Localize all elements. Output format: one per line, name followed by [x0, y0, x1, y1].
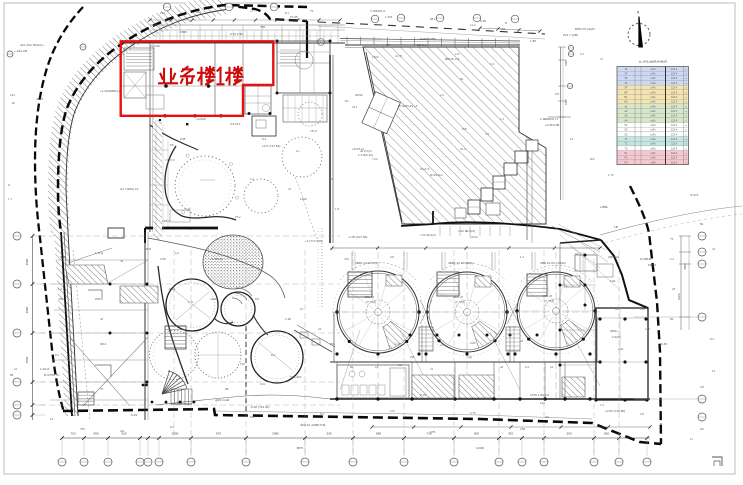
svg-text:TjC: TjC	[240, 362, 246, 366]
svg-text:14: 14	[712, 369, 716, 373]
svg-text:7.b2: 7.b2	[372, 157, 378, 161]
svg-text:2.2: 2.2	[398, 363, 402, 367]
svg-text:0.8: 0.8	[555, 92, 559, 96]
svg-text:Pk1.7 (AB): Pk1.7 (AB)	[563, 33, 578, 37]
svg-text:675: 675	[430, 430, 435, 434]
svg-text:123.4: 123.4	[671, 152, 678, 155]
svg-text:CCA-T: CCA-T	[420, 167, 430, 171]
svg-text:m: m	[685, 92, 687, 94]
svg-text:m: m	[685, 130, 687, 132]
svg-text:m: m	[685, 74, 687, 76]
svg-text:4500: 4500	[25, 258, 29, 265]
svg-text:T9L-2F1: T9L-2F1	[290, 375, 302, 379]
svg-text:123.4: 123.4	[671, 157, 678, 160]
svg-text:1c02(F): 1c02(F)	[612, 335, 621, 339]
svg-text:1.8c: 1.8c	[618, 347, 624, 351]
svg-text:c.c: c.c	[250, 9, 254, 13]
svg-text:750: 750	[260, 25, 265, 29]
svg-text:0.75: 0.75	[420, 393, 426, 397]
svg-text:5F: 5F	[625, 87, 628, 90]
svg-text:1F: 1F	[625, 68, 628, 71]
svg-text:FjF: FjF	[410, 355, 415, 359]
svg-text:6000: 6000	[677, 293, 681, 300]
svg-text:2280: 2280	[564, 60, 568, 66]
svg-text:1R.02: 1R.02	[470, 235, 478, 239]
svg-text:2.70 2.90: 2.70 2.90	[230, 32, 243, 36]
svg-text:1.80: 1.80	[530, 39, 536, 43]
svg-text:xxFx: xxFx	[650, 152, 656, 155]
svg-text:S8.4: S8.4	[100, 342, 107, 346]
svg-text:1.05: 1.05	[395, 342, 401, 346]
svg-text:88.2: 88.2	[430, 17, 436, 21]
svg-text:xxFx: xxFx	[650, 110, 656, 113]
svg-text:214: 214	[160, 11, 165, 15]
svg-text:c.4: c.4	[600, 403, 604, 407]
svg-text:123.4: 123.4	[671, 124, 678, 127]
svg-text:xxFx: xxFx	[650, 129, 656, 132]
svg-text:490: 490	[93, 432, 98, 436]
svg-text:B8: B8	[225, 387, 229, 391]
svg-text:2F: 2F	[625, 73, 628, 76]
svg-text:1B: 1B	[614, 225, 618, 229]
svg-text:m: m	[685, 158, 687, 160]
svg-text:c.BBL: c.BBL	[600, 205, 609, 209]
svg-text:1.205: 1.205	[385, 15, 393, 19]
svg-text:m: m	[685, 144, 687, 146]
svg-text:1.3EB2F.8 c7: 1.3EB2F.8 c7	[540, 117, 559, 121]
svg-text:123.4: 123.4	[671, 101, 678, 104]
svg-text:250: 250	[640, 307, 645, 311]
svg-text:427: 427	[385, 43, 390, 47]
svg-text:JGL 204 7R2(X)+: JGL 204 7R2(X)+	[20, 43, 44, 47]
svg-text:0.8: 0.8	[390, 255, 394, 259]
svg-text:1.8: 1.8	[335, 207, 339, 211]
svg-text:27.35: 27.35	[290, 15, 298, 19]
svg-text:5.4: 5.4	[262, 137, 267, 141]
svg-text:44c: 44c	[120, 429, 125, 433]
svg-text:c2: c2	[520, 339, 524, 343]
svg-text:123.4: 123.4	[671, 77, 678, 80]
svg-text:xxFx: xxFx	[650, 105, 656, 108]
svg-text:x8F4x: x8F4x	[610, 329, 618, 333]
svg-text:75: 75	[310, 9, 314, 13]
svg-text:xxFx: xxFx	[650, 143, 656, 146]
svg-text:520: 520	[250, 415, 255, 419]
svg-text:x1.2: x1.2	[470, 23, 476, 27]
svg-text:G1.7(200) L2: G1.7(200) L2	[120, 187, 139, 191]
svg-text:c1: c1	[600, 57, 603, 61]
svg-text:xxFx: xxFx	[650, 124, 656, 127]
svg-text:x8: x8	[500, 365, 503, 369]
svg-text:123.4: 123.4	[671, 115, 678, 118]
svg-text:2990: 2990	[272, 432, 279, 436]
svg-text:1.2: 1.2	[58, 287, 62, 291]
svg-text:123.4: 123.4	[671, 105, 678, 108]
svg-text:xxFx: xxFx	[650, 119, 656, 122]
svg-text:W/ 7B(X): W/ 7B(X)	[544, 300, 554, 303]
svg-text:W/ 7B(X): W/ 7B(X)	[455, 301, 465, 304]
svg-text:B2: B2	[670, 317, 674, 321]
svg-text:Y=54321.0: Y=54321.0	[370, 9, 385, 13]
svg-text:mZd8: mZd8	[210, 297, 218, 301]
svg-text:xxFx: xxFx	[650, 138, 656, 141]
svg-text:P.8: P.8	[330, 342, 335, 346]
svg-text:D=3750 H=: D=3750 H=	[44, 373, 60, 377]
svg-text:4500: 4500	[25, 356, 29, 363]
svg-text:m: m	[685, 125, 687, 127]
svg-text:B: B	[505, 21, 507, 25]
svg-text:xxFx: xxFx	[650, 157, 656, 160]
svg-text:28.8: 28.8	[145, 247, 151, 251]
svg-text:122: 122	[645, 327, 650, 331]
svg-text:-0.60 (716.40): -0.60 (716.40)	[250, 405, 269, 409]
svg-text:4420: 4420	[564, 99, 568, 105]
svg-text:xxFx: xxFx	[650, 161, 656, 164]
svg-text:xL xFxLxBxRxFxBxR: xL xFxLxBxRxFxBxR	[639, 60, 668, 64]
svg-text:-0.02: -0.02	[168, 287, 175, 291]
svg-text:+0.3F0.2B: +0.3F0.2B	[545, 123, 559, 127]
svg-text:+1.3A09Z8L1c: +1.3A09Z8L1c	[100, 89, 121, 93]
svg-text:m: m	[685, 106, 687, 108]
svg-text:-1.05 (107.95): -1.05 (107.95)	[348, 235, 367, 239]
svg-text:1.7(1): 1.7(1)	[95, 251, 103, 255]
svg-text:1F: 1F	[300, 307, 304, 311]
svg-text:xxFx: xxFx	[650, 101, 656, 104]
svg-text:m: m	[685, 120, 687, 122]
svg-text:m: m	[685, 162, 687, 164]
svg-text:+0.000: +0.000	[196, 117, 206, 121]
svg-text:0.4: 0.4	[490, 62, 494, 66]
svg-text:123.4: 123.4	[671, 133, 678, 136]
svg-text:1.7: 1.7	[8, 197, 12, 201]
svg-text:RF: RF	[624, 91, 628, 94]
svg-text:-0.45: -0.45	[660, 342, 667, 346]
svg-text:48-0.5x 4c8B(718): 48-0.5x 4c8B(718)	[300, 423, 325, 427]
svg-text:m: m	[685, 97, 687, 99]
svg-text:m: m	[685, 111, 687, 113]
svg-text:D=21.0m: D=21.0m	[430, 173, 443, 177]
svg-text:xxFx: xxFx	[650, 77, 656, 80]
svg-text:4BR1.27 W/ 7B(X): 4BR1.27 W/ 7B(X)	[448, 261, 473, 265]
svg-text:123.4: 123.4	[671, 129, 678, 132]
svg-text:1.2: 1.2	[500, 117, 504, 121]
svg-text:0.8: 0.8	[700, 385, 704, 389]
svg-text:123.4: 123.4	[671, 143, 678, 146]
svg-text:75: 75	[670, 237, 674, 241]
svg-text:8.8: 8.8	[255, 297, 259, 301]
svg-text:m: m	[685, 134, 687, 136]
svg-text:c2: c2	[14, 367, 17, 371]
svg-text:R+2: R+2	[196, 10, 202, 14]
svg-text:ABF4A1: ABF4A1	[608, 255, 620, 259]
svg-text:xxFx: xxFx	[650, 91, 656, 94]
svg-text:x2: x2	[440, 343, 443, 347]
svg-text:2.c: 2.c	[296, 149, 300, 153]
svg-text:xxFx: xxFx	[650, 73, 656, 76]
svg-text:2.4: 2.4	[440, 93, 444, 97]
svg-text:+3 (717.640): +3 (717.640)	[305, 239, 323, 243]
svg-text:+8 RT+a: +8 RT+a	[352, 147, 364, 151]
svg-text:0.75: 0.75	[470, 411, 476, 415]
svg-text:1.20: 1.20	[285, 317, 291, 321]
svg-text:c2: c2	[712, 247, 715, 251]
svg-text:8b: 8b	[460, 77, 464, 81]
svg-text:0.8b: 0.8b	[470, 341, 476, 345]
svg-text:JS1: JS1	[344, 257, 349, 261]
svg-text:45.62: 45.62	[355, 93, 363, 97]
svg-text:BHD P6 (AQH: BHD P6 (AQH	[575, 27, 595, 31]
svg-text:cjR4 xUd0: cjR4 xUd0	[215, 398, 230, 402]
svg-text:123.4: 123.4	[671, 119, 678, 122]
svg-text:B1: B1	[700, 222, 704, 226]
svg-text:1075.1 82.3 8: 1075.1 82.3 8	[530, 393, 549, 397]
svg-text:Zh8: Zh8	[95, 297, 101, 301]
svg-text:m: m	[685, 78, 687, 80]
svg-text:900: 900	[474, 432, 479, 436]
svg-text:88: 88	[10, 373, 14, 377]
svg-text:8.2: 8.2	[170, 425, 174, 429]
svg-text:+1 (B9.8): +1 (B9.8)	[210, 257, 223, 261]
svg-text:22: 22	[318, 327, 322, 331]
svg-text:1.FA-8: 1.FA-8	[40, 367, 49, 371]
svg-text:8 cZB4Z: 8 cZB4Z	[640, 257, 652, 261]
svg-text:123.4: 123.4	[671, 68, 678, 71]
svg-text:c 02 9E.9(X): c 02 9E.9(X)	[458, 229, 475, 233]
svg-text:Fd8: Fd8	[180, 137, 186, 141]
svg-text:122: 122	[540, 401, 545, 405]
svg-text:1F8.1: 1F8.1	[162, 219, 170, 223]
svg-text:8.8: 8.8	[462, 127, 467, 131]
svg-text:Rf GRN.FL +T: Rf GRN.FL +T	[398, 104, 418, 108]
svg-text:750: 750	[70, 432, 75, 436]
svg-text:8c2: 8c2	[590, 157, 595, 161]
svg-text:-0.45: -0.45	[130, 413, 137, 417]
svg-text:44: 44	[120, 259, 124, 263]
svg-text:c.02 9E.9(X): c.02 9E.9(X)	[420, 233, 436, 237]
svg-text:W/ 7B(X): W/ 7B(X)	[366, 301, 376, 304]
svg-text:B1: B1	[350, 365, 354, 369]
svg-text:0.4: 0.4	[525, 365, 529, 369]
svg-text:560: 560	[604, 432, 609, 436]
svg-text:xxFx: xxFx	[650, 115, 656, 118]
svg-text:c4: c4	[375, 365, 378, 369]
svg-text:xxFx: xxFx	[650, 82, 656, 85]
svg-text:K+0.00: K+0.00	[150, 44, 160, 48]
svg-text:12400: 12400	[476, 446, 484, 450]
svg-text:m: m	[685, 69, 687, 71]
svg-text:0.2c: 0.2c	[260, 382, 266, 386]
svg-text:B4P5.12B6: B4P5.12B6	[420, 37, 436, 41]
svg-text:123.4: 123.4	[671, 110, 678, 113]
svg-text:150: 150	[520, 427, 525, 431]
svg-text:R1: R1	[345, 99, 349, 103]
svg-text:4.2: 4.2	[615, 307, 619, 311]
svg-text:123.4: 123.4	[671, 82, 678, 85]
svg-text:c.8: c.8	[485, 132, 489, 136]
svg-text:4BR1.22 W/ 6(X): 4BR1.22 W/ 6(X)	[355, 261, 378, 265]
svg-text:m: m	[685, 102, 687, 104]
svg-text:x0.78: x0.78	[395, 54, 402, 58]
svg-text:1c4: 1c4	[390, 409, 395, 413]
svg-text:c8.1: c8.1	[352, 105, 358, 109]
svg-text:123.4: 123.4	[671, 91, 678, 94]
svg-text:1200: 1200	[372, 55, 379, 59]
svg-text:2.08: 2.08	[160, 257, 166, 261]
svg-text:123.4: 123.4	[671, 73, 678, 76]
svg-text:675: 675	[216, 432, 221, 436]
svg-text:JT8: JT8	[58, 297, 63, 301]
svg-text:290: 290	[566, 432, 571, 436]
svg-text:430: 430	[500, 27, 505, 31]
svg-text:c8: c8	[672, 287, 675, 291]
svg-text:988: 988	[376, 432, 381, 436]
svg-text:xxFx: xxFx	[650, 133, 656, 136]
svg-text:c2: c2	[330, 247, 333, 251]
svg-text:xxFx: xxFx	[650, 68, 656, 71]
svg-text:m: m	[685, 116, 687, 118]
svg-text:4500: 4500	[683, 263, 687, 270]
svg-text:2.2: 2.2	[580, 52, 584, 56]
svg-text:+0.00 (716.80): +0.00 (716.80)	[605, 409, 625, 413]
svg-text:m: m	[685, 153, 687, 155]
svg-text:c4: c4	[288, 187, 291, 191]
svg-text:75: 75	[100, 387, 104, 391]
svg-text:1J00: 1J00	[300, 197, 307, 201]
svg-text:dLZX: dLZX	[36, 97, 43, 101]
svg-text:Jyj: Jyj	[468, 355, 472, 359]
svg-text:214: 214	[10, 93, 15, 97]
svg-text:1-1.8(2.1h): 1-1.8(2.1h)	[358, 153, 373, 157]
svg-text:2R: 2R	[545, 415, 549, 419]
svg-text:X=2.5: X=2.5	[690, 193, 698, 197]
svg-text:8870: 8870	[297, 446, 304, 450]
svg-text:123.4: 123.4	[671, 161, 678, 164]
svg-text:m: m	[685, 139, 687, 141]
svg-text:m: m	[685, 88, 687, 90]
svg-text:B4: B4	[330, 177, 334, 181]
svg-text:123.4: 123.4	[671, 138, 678, 141]
svg-text:m: m	[685, 83, 687, 85]
svg-text:75.2: 75.2	[235, 215, 241, 219]
svg-text:0.25: 0.25	[480, 19, 486, 23]
svg-text:+ A24.2M: + A24.2M	[14, 49, 28, 53]
svg-text:bZ: bZ	[700, 427, 704, 431]
svg-text:J1: J1	[430, 367, 433, 371]
svg-text:YP-2: YP-2	[310, 129, 317, 133]
svg-text:xxFx: xxFx	[650, 96, 656, 99]
svg-text:14: 14	[50, 417, 54, 421]
svg-text:750: 750	[80, 427, 85, 431]
svg-text:B: B	[660, 422, 662, 426]
svg-text:1.2: 1.2	[520, 255, 524, 259]
svg-text:12.0 (717.64): 12.0 (717.64)	[262, 144, 280, 148]
svg-text:3F: 3F	[625, 77, 628, 80]
svg-text:0.22: 0.22	[185, 207, 191, 211]
svg-text:22.4: 22.4	[460, 147, 466, 151]
svg-text:1.75: 1.75	[608, 173, 614, 177]
svg-text:508: 508	[326, 432, 331, 436]
svg-text:8.2: 8.2	[320, 412, 324, 416]
svg-text:Ld: Ld	[175, 251, 179, 255]
svg-text:4F: 4F	[625, 82, 628, 85]
svg-text:3.6 FFL: 3.6 FFL	[230, 122, 241, 126]
svg-text:8.1: 8.1	[55, 353, 59, 357]
svg-text:4BR.21 9V / 2BAN: 4BR.21 9V / 2BAN	[540, 261, 566, 265]
svg-text:N: N	[637, 11, 640, 15]
svg-text:BROIL 2.4: BROIL 2.4	[445, 57, 460, 61]
svg-text:8.1: 8.1	[285, 11, 289, 15]
svg-text:123.4: 123.4	[671, 87, 678, 90]
svg-text:xxFx: xxFx	[650, 87, 656, 90]
svg-text:8.4: 8.4	[271, 353, 275, 357]
svg-text:14: 14	[570, 137, 574, 141]
svg-text:3.50: 3.50	[60, 255, 66, 259]
svg-text:2.4: 2.4	[670, 257, 674, 261]
svg-text:p2: p2	[550, 365, 554, 369]
svg-text:2690: 2690	[172, 432, 179, 436]
svg-text:2.8: 2.8	[640, 412, 644, 416]
svg-text:1500: 1500	[180, 30, 187, 34]
svg-text:4800: 4800	[25, 306, 29, 313]
svg-text:1.2: 1.2	[250, 177, 254, 181]
svg-text:425: 425	[508, 432, 513, 436]
svg-text:8.2: 8.2	[710, 337, 714, 341]
svg-text:123.4: 123.4	[671, 96, 678, 99]
svg-text:P8: P8	[170, 143, 174, 147]
svg-text:123.4: 123.4	[671, 147, 678, 150]
svg-text:+B2.9bL: +B2.9bL	[415, 43, 427, 47]
svg-text:Fd2: Fd2	[610, 279, 616, 283]
svg-text:bF: bF	[575, 252, 579, 256]
svg-text:xxFx: xxFx	[650, 147, 656, 150]
svg-text:9Z.9A: 9Z.9A	[648, 263, 657, 267]
svg-text:2.3: 2.3	[455, 52, 460, 56]
svg-text:c8: c8	[100, 317, 103, 321]
svg-text:m: m	[685, 148, 687, 150]
